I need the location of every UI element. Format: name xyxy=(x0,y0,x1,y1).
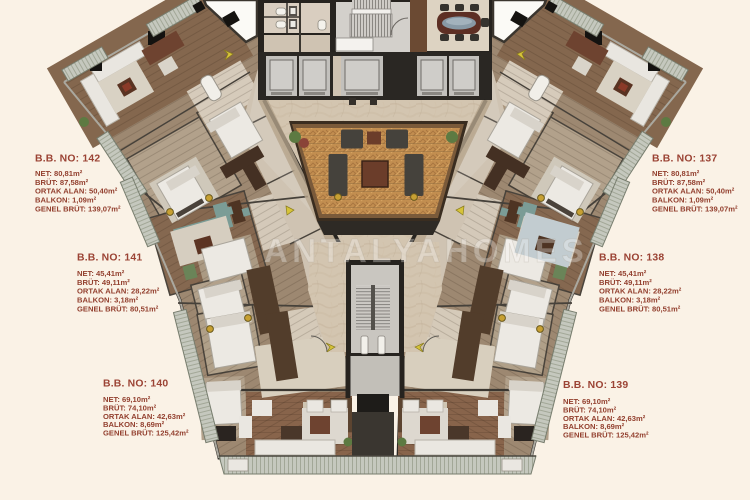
svg-text:NET: 45,41m²: NET: 45,41m² xyxy=(599,269,647,278)
svg-text:GENEL BRÜT: 125,42m²: GENEL BRÜT: 125,42m² xyxy=(103,429,189,438)
svg-text:NET: 45,41m²: NET: 45,41m² xyxy=(77,269,125,278)
svg-text:B.B. NO: 142: B.B. NO: 142 xyxy=(35,154,100,165)
svg-text:ANTALYAHOMES: ANTALYAHOMES xyxy=(264,232,588,269)
svg-text:ORTAK ALAN: 50,40m²: ORTAK ALAN: 50,40m² xyxy=(35,187,118,196)
svg-text:NET: 80,81m²: NET: 80,81m² xyxy=(35,169,83,178)
svg-text:BRÜT: 87,58m²: BRÜT: 87,58m² xyxy=(652,178,706,187)
svg-text:BALKON: 3,18m²: BALKON: 3,18m² xyxy=(77,296,139,305)
svg-text:B.B. NO: 138: B.B. NO: 138 xyxy=(599,253,664,264)
svg-text:GENEL BRÜT: 80,51m²: GENEL BRÜT: 80,51m² xyxy=(599,304,681,313)
svg-text:ORTAK ALAN: 28,22m²: ORTAK ALAN: 28,22m² xyxy=(77,287,160,296)
svg-text:ORTAK ALAN: 28,22m²: ORTAK ALAN: 28,22m² xyxy=(599,287,682,296)
svg-text:BRÜT: 49,11m²: BRÜT: 49,11m² xyxy=(77,278,130,287)
svg-text:ORTAK ALAN: 50,40m²: ORTAK ALAN: 50,40m² xyxy=(652,187,735,196)
svg-text:B.B. NO: 137: B.B. NO: 137 xyxy=(652,154,717,165)
svg-text:GENEL BRÜT: 139,07m²: GENEL BRÜT: 139,07m² xyxy=(35,204,121,213)
svg-text:BALKON: 1,09m²: BALKON: 1,09m² xyxy=(35,196,97,205)
svg-text:BRÜT: 87,58m²: BRÜT: 87,58m² xyxy=(35,178,89,187)
svg-text:GENEL BRÜT: 139,07m²: GENEL BRÜT: 139,07m² xyxy=(652,204,738,213)
svg-text:B.B. NO: 140: B.B. NO: 140 xyxy=(103,379,168,390)
svg-text:B.B. NO: 141: B.B. NO: 141 xyxy=(77,253,142,264)
svg-text:GENEL BRÜT: 125,42m²: GENEL BRÜT: 125,42m² xyxy=(563,431,649,440)
svg-text:BALKON: 3,18m²: BALKON: 3,18m² xyxy=(599,296,661,305)
svg-text:NET: 80,81m²: NET: 80,81m² xyxy=(652,169,700,178)
svg-text:BRÜT: 49,11m²: BRÜT: 49,11m² xyxy=(599,278,652,287)
svg-text:BALKON: 1,09m²: BALKON: 1,09m² xyxy=(652,196,714,205)
svg-text:GENEL BRÜT: 80,51m²: GENEL BRÜT: 80,51m² xyxy=(77,304,159,313)
svg-text:B.B. NO: 139: B.B. NO: 139 xyxy=(563,380,628,391)
